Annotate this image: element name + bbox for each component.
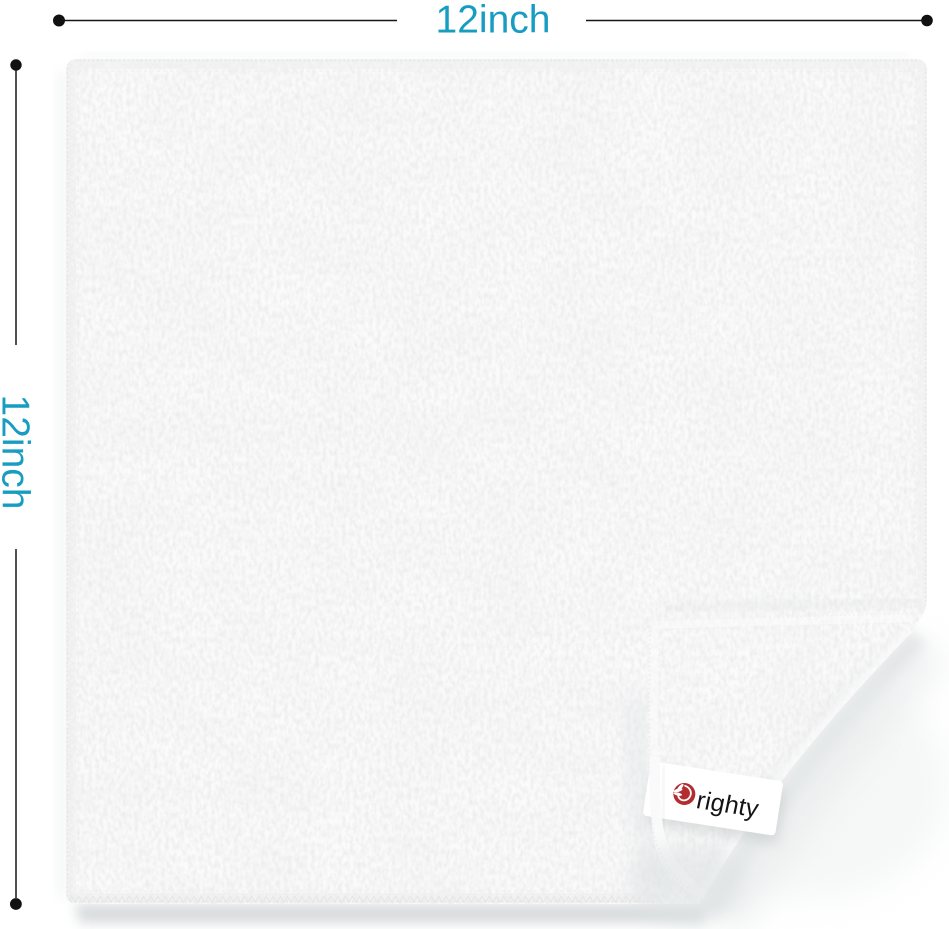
svg-text:12inch: 12inch <box>436 0 551 42</box>
svg-text:12inch: 12inch <box>0 395 37 510</box>
